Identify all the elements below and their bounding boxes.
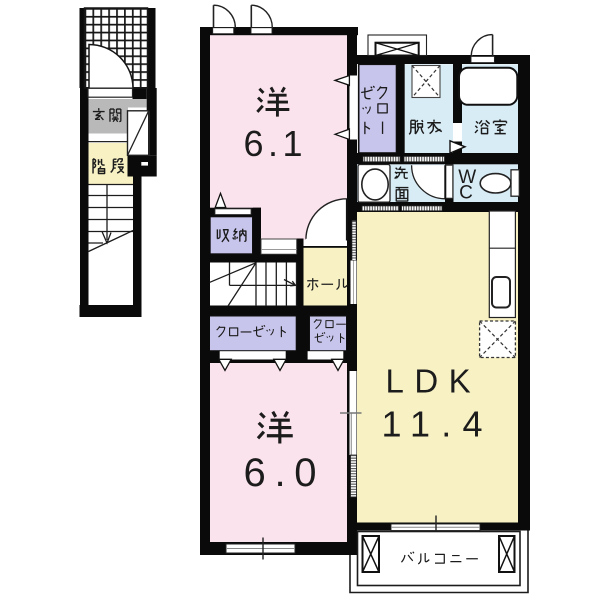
svg-text:6.1: 6.1 (244, 123, 308, 164)
svg-text:LDK: LDK (386, 362, 482, 399)
svg-text:6.0: 6.0 (244, 451, 326, 495)
svg-text:11.4: 11.4 (382, 404, 494, 445)
svg-text:C: C (459, 183, 473, 204)
